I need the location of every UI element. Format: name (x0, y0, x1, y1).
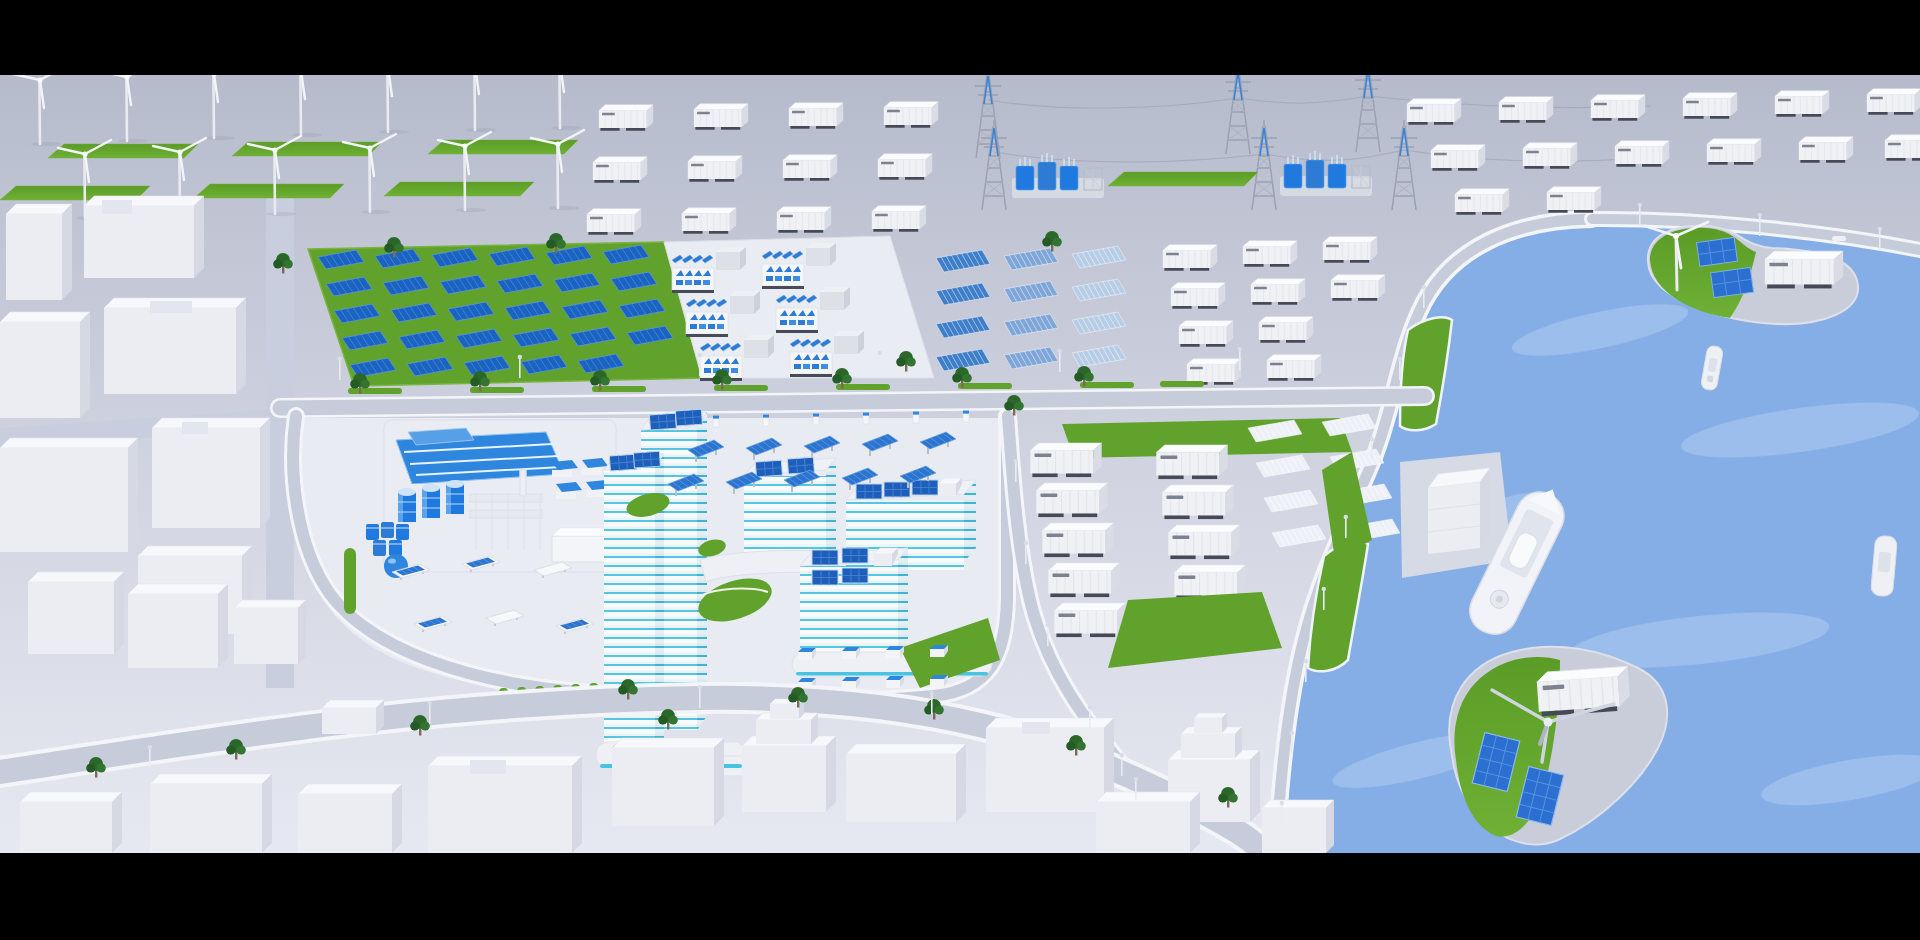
storage-container (599, 105, 653, 131)
city-block (428, 756, 582, 853)
storage-container (1171, 283, 1225, 309)
logistics-container (1042, 523, 1113, 557)
storage-container (1259, 317, 1313, 343)
ev-charger (813, 414, 819, 425)
city-block (0, 438, 138, 552)
logistics-container (1036, 483, 1107, 517)
rooftop-pv (609, 454, 636, 471)
storage-container (1323, 237, 1377, 263)
city-block (152, 418, 270, 528)
storage-container (1331, 275, 1385, 301)
ev-charger (963, 411, 969, 422)
logistics-container (1048, 563, 1119, 597)
logistics-container (1162, 485, 1233, 519)
storage-container (694, 104, 748, 130)
storage-container (1799, 137, 1853, 163)
city-block (1096, 792, 1200, 853)
storage-container (777, 207, 831, 233)
city-block (846, 744, 966, 822)
ev-charger (913, 412, 919, 423)
storage-container (1775, 91, 1829, 117)
rooftop-pv (842, 568, 868, 583)
city-block (28, 572, 124, 654)
storage-container (1591, 95, 1645, 121)
storage-container (682, 208, 736, 234)
city-block (234, 600, 306, 664)
storage-container (1163, 245, 1217, 271)
storage-container (872, 206, 926, 232)
storage-container (1455, 189, 1509, 215)
city-block (322, 700, 384, 734)
letterbox-top (0, 0, 1920, 75)
rooftop-pv (856, 484, 882, 499)
storage-container (1707, 139, 1761, 165)
storage-container (688, 156, 742, 182)
grass-strip (384, 182, 534, 196)
letterbox-bottom (0, 853, 1920, 940)
inverter-skid-area (664, 236, 934, 381)
storage-container (1251, 279, 1305, 305)
storage-container (783, 155, 837, 181)
sphere-highlight (388, 558, 396, 563)
rooftop-pv (755, 460, 782, 477)
scene-svg (0, 0, 1920, 940)
rooftop-pv (675, 409, 702, 426)
island-pv-panel (1711, 267, 1754, 297)
rooftop-pv (812, 550, 838, 565)
city-block (84, 196, 204, 278)
small-ship (1870, 535, 1897, 597)
storage-container (1547, 187, 1601, 213)
render-stage (0, 0, 1920, 940)
ev-charger (713, 416, 719, 427)
grass-strip (194, 184, 344, 198)
storage-container (1885, 135, 1920, 161)
storage-container (789, 103, 843, 129)
storage-container (878, 154, 932, 180)
storage-container (1499, 97, 1553, 123)
city-block (612, 738, 724, 826)
city-block (20, 792, 122, 853)
logistics-container (1168, 525, 1239, 559)
logistics-container (1156, 445, 1227, 479)
ev-charger (863, 413, 869, 424)
logistics-container (1030, 443, 1101, 477)
storage-container (1523, 143, 1577, 169)
industrial-plant (366, 420, 616, 578)
rooftop-pv (884, 482, 910, 497)
grass-strip (232, 142, 382, 156)
rooftop-pv (812, 570, 838, 585)
city-block (298, 784, 402, 853)
storage-container (1431, 145, 1485, 171)
storage-container (884, 102, 938, 128)
tiny-boat (1832, 236, 1846, 241)
rooftop-pv (842, 548, 868, 563)
island-pv-panel (1697, 237, 1738, 266)
island-container (1765, 251, 1843, 288)
storage-container (1267, 355, 1321, 381)
storage-container (1179, 321, 1233, 347)
city-block (128, 584, 228, 668)
storage-container (1407, 99, 1461, 125)
storage-container (1243, 241, 1297, 267)
city-block (986, 718, 1114, 812)
logistics-container (1054, 603, 1125, 637)
quay-building (1428, 468, 1490, 554)
ev-charger (763, 415, 769, 426)
storage-container (593, 157, 647, 183)
grass-strip (1108, 172, 1258, 186)
rooftop-pv (633, 451, 660, 468)
city-block (6, 204, 72, 300)
city-block (1262, 800, 1334, 853)
rooftop-pv (912, 480, 938, 495)
solar-farm (308, 242, 702, 386)
storage-container (1867, 89, 1920, 115)
storage-container (1615, 141, 1669, 167)
city-block (0, 312, 90, 418)
storage-container (1187, 359, 1241, 385)
storage-container (587, 209, 641, 235)
storage-container (1683, 93, 1737, 119)
rooftop-pv (649, 413, 676, 430)
city-block (104, 298, 246, 394)
city-block (150, 774, 272, 853)
